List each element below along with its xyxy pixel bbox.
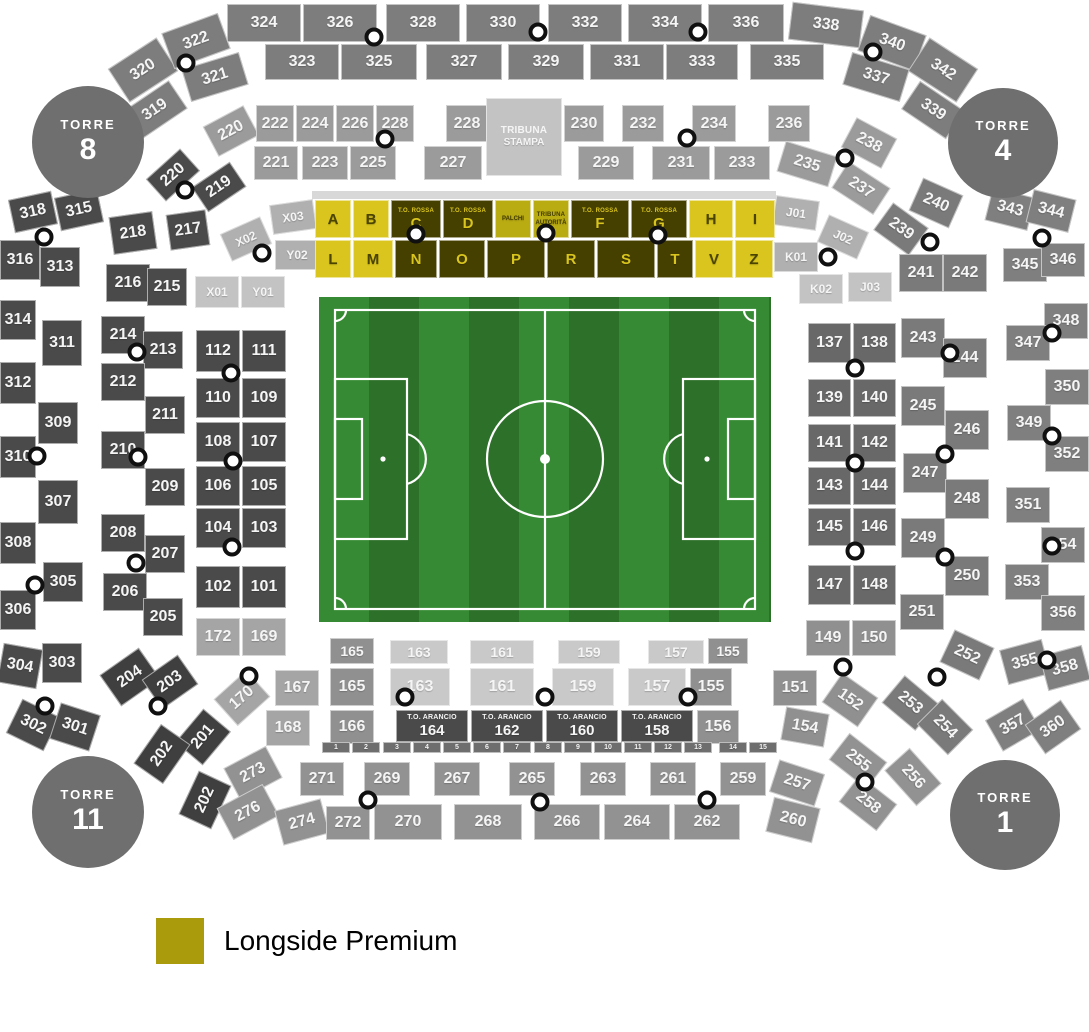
section-264[interactable]: 264 [604,804,670,840]
section-306[interactable]: 306 [0,590,36,630]
gate-marker [177,54,196,73]
section-label: 271 [309,771,336,787]
section-label: 257 [782,771,812,794]
section-209[interactable]: 209 [145,468,185,506]
section-label: 309 [45,415,72,431]
gate-marker [223,538,242,557]
section-strip-2[interactable]: 2 [352,742,380,753]
section-label: X01 [206,286,227,298]
section-label: 301 [60,715,90,738]
section-360[interactable]: 360 [1025,700,1082,755]
tower-4: TORRE4 [948,88,1058,198]
section-label: 208 [110,525,137,541]
section-231[interactable]: 231 [652,146,710,180]
section-strip-15[interactable]: 15 [749,742,777,753]
section-label: J03 [860,281,880,293]
tower-number: 11 [72,803,104,837]
section-163a[interactable]: 163 [390,640,448,664]
gate-marker [1043,427,1062,446]
section-208[interactable]: 208 [101,514,145,552]
section-265[interactable]: 265 [509,762,555,796]
section-327[interactable]: 327 [426,44,502,80]
section-157a[interactable]: 157 [648,640,704,664]
stadium-map: 3203223243263283303323343363383403423193… [0,0,1089,1032]
section-strip-8[interactable]: 8 [534,742,562,753]
section-159[interactable]: 159 [552,668,614,706]
section-label: 206 [112,584,139,600]
section-162[interactable]: T.O. ARANCIO162 [471,710,543,742]
section-strip-10[interactable]: 10 [594,742,622,753]
penalty-spot-right [704,456,709,461]
gate-marker [149,697,168,716]
section-152[interactable]: 152 [822,673,879,728]
section-label: 139 [816,390,843,406]
section-159a[interactable]: 159 [558,640,620,664]
section-165a[interactable]: 165 [330,638,374,664]
section-226[interactable]: 226 [336,105,374,142]
section-248[interactable]: 248 [945,479,989,519]
section-230[interactable]: 230 [564,105,604,142]
section-label: 328 [410,15,437,31]
section-270[interactable]: 270 [374,804,442,840]
section-label: 142 [861,435,888,451]
section-caption: T.O. ROSSA [450,208,486,214]
section-303[interactable]: 303 [42,643,82,683]
gate-marker [396,688,415,707]
section-palchi[interactable]: PALCHI [495,200,531,238]
section-251[interactable]: 251 [900,594,944,630]
section-207[interactable]: 207 [145,535,185,573]
section-label: 213 [150,342,177,358]
section-242[interactable]: 242 [943,254,987,292]
section-106[interactable]: 106 [196,466,240,506]
section-label: 159 [577,645,600,659]
section-161[interactable]: 161 [470,668,534,706]
section-219[interactable]: 219 [192,162,247,213]
section-259[interactable]: 259 [720,762,766,796]
section-224[interactable]: 224 [296,105,334,142]
section-label: 10 [604,744,612,751]
section-305[interactable]: 305 [43,562,83,602]
section-strip-4[interactable]: 4 [413,742,441,753]
section-B[interactable]: B [353,200,389,238]
section-label: 5 [455,744,459,751]
section-label: 172 [205,629,232,645]
section-331[interactable]: 331 [590,44,664,80]
section-A[interactable]: A [315,200,351,238]
section-344[interactable]: 344 [1026,189,1077,233]
section-145[interactable]: 145 [808,508,851,546]
section-246[interactable]: 246 [945,410,989,450]
section-K02[interactable]: K02 [799,274,843,304]
section-label: 105 [251,478,278,494]
structure-bar [312,191,776,199]
section-205[interactable]: 205 [143,598,183,636]
section-label: 168 [275,720,302,736]
section-label: 220 [215,118,246,145]
section-157[interactable]: 157 [628,668,686,706]
tower-8: TORRE8 [32,86,144,198]
section-252[interactable]: 252 [939,629,994,680]
section-102[interactable]: 102 [196,566,240,608]
section-label: 6 [485,744,489,751]
section-263[interactable]: 263 [580,762,626,796]
section-O[interactable]: O [439,240,485,278]
section-label: 318 [18,201,47,222]
section-217[interactable]: 217 [166,209,211,250]
section-161a[interactable]: 161 [470,640,534,664]
section-261[interactable]: 261 [650,762,696,796]
section-335[interactable]: 335 [750,44,824,80]
section-label: L [328,252,337,267]
section-label: 15 [759,744,767,751]
section-356[interactable]: 356 [1041,595,1085,631]
section-label: 306 [5,602,32,618]
section-label: 12 [664,744,672,751]
section-332[interactable]: 332 [548,4,622,42]
section-strip-13[interactable]: 13 [684,742,712,753]
section-label: 240 [921,190,952,215]
section-label: 149 [815,630,842,646]
section-272[interactable]: 272 [326,806,370,840]
section-143[interactable]: 143 [808,467,851,505]
section-232[interactable]: 232 [622,105,664,142]
section-316[interactable]: 316 [0,240,40,280]
section-label: 355 [1010,651,1040,673]
section-147[interactable]: 147 [808,565,851,605]
section-165[interactable]: 165 [330,668,374,706]
section-label: 349 [1016,415,1043,431]
section-label: 14 [729,744,737,751]
section-107[interactable]: 107 [242,422,286,462]
section-label: 243 [910,330,937,346]
section-268[interactable]: 268 [454,804,522,840]
legend-swatch-longside-premium [156,918,204,964]
section-M[interactable]: M [353,240,393,278]
section-201[interactable]: 201 [175,709,231,766]
section-222[interactable]: 222 [256,105,294,142]
section-228b[interactable]: 228 [446,105,488,142]
section-label: 8 [546,744,550,751]
section-label: 203 [154,668,185,696]
section-label: K02 [810,283,832,295]
section-235[interactable]: 235 [777,141,838,187]
section-label: 163 [407,645,430,659]
section-233[interactable]: 233 [714,146,770,180]
section-109[interactable]: 109 [242,378,286,418]
section-212[interactable]: 212 [101,363,145,401]
section-172[interactable]: 172 [196,618,240,656]
section-168[interactable]: 168 [266,710,310,746]
section-350[interactable]: 350 [1045,369,1089,405]
section-156[interactable]: 156 [697,710,739,744]
section-label: 157 [664,645,687,659]
section-label: 228 [454,116,481,132]
tower-number: 1 [997,806,1014,840]
section-strip-3[interactable]: 3 [383,742,411,753]
section-label: 314 [5,312,32,328]
section-label: O [456,252,468,267]
section-label: 302 [17,712,48,738]
section-154[interactable]: 154 [780,706,829,747]
section-167[interactable]: 167 [275,670,319,706]
section-150[interactable]: 150 [852,620,896,656]
section-label: Y01 [252,286,273,298]
section-label: 312 [5,375,32,391]
section-label: 330 [490,15,517,31]
section-label: 103 [251,520,278,536]
section-323[interactable]: 323 [265,44,339,80]
section-label: 106 [205,478,232,494]
section-225[interactable]: 225 [350,146,396,180]
section-label: 1 [334,744,338,751]
section-329[interactable]: 329 [508,44,584,80]
section-218[interactable]: 218 [109,211,158,255]
section-206[interactable]: 206 [103,573,147,611]
gate-marker [537,224,556,243]
section-label: 138 [861,335,888,351]
tower-name: TORRE [60,787,115,802]
section-301[interactable]: 301 [49,702,101,751]
section-318[interactable]: 318 [8,191,58,233]
section-J03[interactable]: J03 [848,272,892,302]
section-label: 209 [152,479,179,495]
section-325[interactable]: 325 [341,44,417,80]
section-label: 141 [816,435,843,451]
section-158[interactable]: T.O. ARANCIO158 [621,710,693,742]
gate-marker [253,244,272,263]
section-351[interactable]: 351 [1006,487,1050,523]
section-237[interactable]: 237 [831,161,890,215]
section-label: 260 [778,809,808,831]
section-256[interactable]: 256 [884,748,941,806]
section-label: 332 [572,15,599,31]
section-label: 150 [861,630,888,646]
gate-marker [128,343,147,362]
section-220[interactable]: 220 [203,105,260,157]
section-229[interactable]: 229 [578,146,634,180]
section-304[interactable]: 304 [0,643,43,689]
section-223[interactable]: 223 [302,146,348,180]
section-J01[interactable]: J01 [772,195,820,231]
section-227[interactable]: 227 [424,146,482,180]
section-111[interactable]: 111 [242,330,286,372]
section-213[interactable]: 213 [143,331,183,369]
section-309[interactable]: 309 [38,402,78,444]
section-144[interactable]: 144 [853,467,896,505]
section-strip-1[interactable]: 1 [322,742,350,753]
section-215[interactable]: 215 [147,268,187,306]
section-label: 239 [885,215,916,244]
section-D[interactable]: T.O. ROSSAD [443,200,493,238]
section-311[interactable]: 311 [42,320,82,366]
gate-marker [28,447,47,466]
section-label: Y02 [286,249,307,261]
section-314[interactable]: 314 [0,300,36,340]
section-label: J02 [831,227,854,246]
section-Z[interactable]: Z [735,240,773,278]
penalty-spot-left [380,456,385,461]
section-T[interactable]: T [657,240,693,278]
section-label: 9 [576,744,580,751]
gate-marker [127,554,146,573]
section-307[interactable]: 307 [38,480,78,524]
section-label: 167 [284,680,311,696]
section-label: 224 [302,116,329,132]
section-110[interactable]: 110 [196,378,240,418]
section-138[interactable]: 138 [853,323,896,363]
section-strip-6[interactable]: 6 [473,742,501,753]
gate-marker [222,364,241,383]
section-label: 145 [816,519,843,535]
section-label: 308 [5,535,32,551]
section-tribuna-stampa[interactable]: TRIBUNASTAMPA [486,98,562,176]
section-label: 305 [50,574,77,590]
section-H[interactable]: H [689,200,733,238]
section-F[interactable]: T.O. ROSSAF [571,200,629,238]
section-P[interactable]: P [487,240,545,278]
section-267[interactable]: 267 [434,762,480,796]
section-160[interactable]: T.O. ARANCIO160 [546,710,618,742]
section-105[interactable]: 105 [242,466,286,506]
section-label: 303 [49,655,76,671]
section-label: 147 [816,577,843,593]
section-221[interactable]: 221 [254,146,298,180]
section-338[interactable]: 338 [788,2,864,48]
section-caption: TRIBUNA [537,212,565,218]
section-label: 165 [339,679,366,695]
section-137[interactable]: 137 [808,323,851,363]
section-strip-12[interactable]: 12 [654,742,682,753]
section-label: 274 [287,811,317,833]
section-label: 335 [774,54,801,70]
section-324[interactable]: 324 [227,4,301,42]
section-label: 248 [954,491,981,507]
section-139[interactable]: 139 [808,379,851,417]
section-label: 229 [593,155,620,171]
section-216[interactable]: 216 [106,264,150,302]
section-328[interactable]: 328 [386,4,460,42]
section-148[interactable]: 148 [853,565,896,605]
section-K01[interactable]: K01 [774,242,818,272]
gate-marker [536,688,555,707]
section-Y02[interactable]: Y02 [275,240,319,270]
section-146[interactable]: 146 [853,508,896,546]
section-271[interactable]: 271 [300,762,344,796]
section-strip-11[interactable]: 11 [624,742,652,753]
center-spot [540,454,550,464]
section-label: 255 [843,746,874,775]
gate-marker [864,43,883,62]
section-308[interactable]: 308 [0,522,36,564]
section-164[interactable]: T.O. ARANCIO164 [396,710,468,742]
section-label: 111 [252,343,277,359]
section-141[interactable]: 141 [808,424,851,462]
section-243[interactable]: 243 [901,318,945,358]
section-label: 112 [205,343,231,359]
section-155a[interactable]: 155 [708,638,748,664]
section-label: 230 [571,116,598,132]
gate-marker [678,129,697,148]
section-strip-7[interactable]: 7 [503,742,531,753]
section-149[interactable]: 149 [806,620,850,656]
section-L[interactable]: L [315,240,351,278]
section-274[interactable]: 274 [274,798,330,845]
gate-marker [649,226,668,245]
section-101[interactable]: 101 [242,566,286,608]
section-label: 304 [5,656,34,676]
gate-marker [936,445,955,464]
section-313[interactable]: 313 [40,247,80,287]
section-caption: T.O. ROSSA [582,208,618,214]
section-N[interactable]: N [395,240,437,278]
section-label: 262 [694,814,721,830]
section-label: PALCHI [502,216,524,222]
section-label: 170 [227,683,258,713]
section-234[interactable]: 234 [692,105,736,142]
section-245[interactable]: 245 [901,386,945,426]
section-label: 236 [776,116,803,132]
section-169[interactable]: 169 [242,618,286,656]
section-312[interactable]: 312 [0,362,36,404]
section-V[interactable]: V [695,240,733,278]
section-label: 215 [154,279,181,295]
section-241[interactable]: 241 [899,254,943,292]
section-236[interactable]: 236 [768,105,810,142]
section-label: 241 [908,265,935,281]
gate-marker [921,233,940,252]
section-label: 104 [205,520,232,536]
section-strip-9[interactable]: 9 [564,742,592,753]
section-X03[interactable]: X03 [269,199,317,235]
section-346[interactable]: 346 [1041,243,1085,277]
section-strip-14[interactable]: 14 [719,742,747,753]
section-label: 221 [263,155,290,171]
section-label: 146 [861,519,888,535]
section-label: 353 [1014,574,1041,590]
section-X01[interactable]: X01 [195,276,239,308]
section-S[interactable]: S [597,240,655,278]
section-103[interactable]: 103 [242,508,286,548]
section-166[interactable]: 166 [330,710,374,744]
section-label: 155 [698,679,725,695]
section-151[interactable]: 151 [773,670,817,706]
section-label: 161 [490,645,513,659]
section-label: 261 [660,771,687,787]
section-R[interactable]: R [547,240,595,278]
section-211[interactable]: 211 [145,396,185,434]
section-label: 137 [816,335,843,351]
section-I[interactable]: I [735,200,775,238]
section-label: 101 [251,579,278,595]
section-label: 237 [845,174,876,202]
section-label: 162 [494,723,519,738]
section-336[interactable]: 336 [708,4,784,42]
section-label: 235 [792,152,822,175]
tower-number: 8 [80,133,97,167]
section-label: 352 [1054,446,1081,462]
section-140[interactable]: 140 [853,379,896,417]
section-333[interactable]: 333 [666,44,738,80]
section-strip-5[interactable]: 5 [443,742,471,753]
section-Y01[interactable]: Y01 [241,276,285,308]
legend-label: Longside Premium [224,925,457,957]
legend: Longside Premium [156,918,457,964]
section-label: 152 [834,686,865,714]
section-label: 110 [205,390,231,406]
section-label: 148 [861,577,888,593]
gate-marker [689,23,708,42]
